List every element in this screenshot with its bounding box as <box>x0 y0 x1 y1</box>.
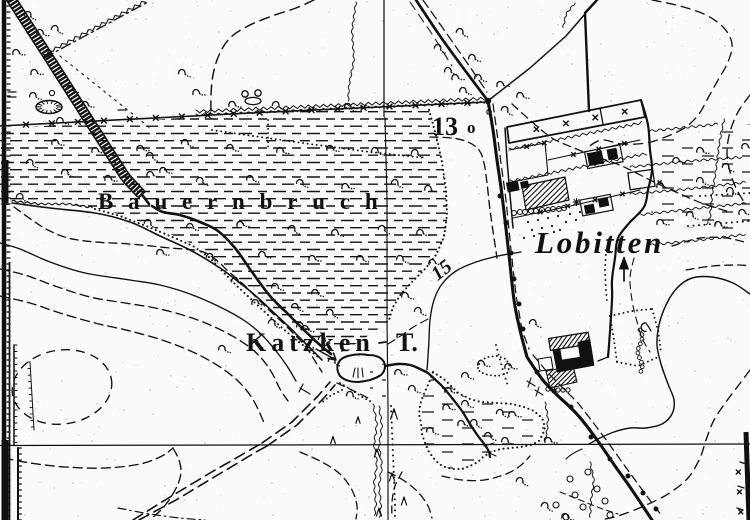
svg-text:Katzken: Katzken <box>246 328 375 357</box>
svg-text:o: o <box>467 118 476 137</box>
svg-text:13: 13 <box>432 112 458 141</box>
svg-text:Bauernbruch: Bauernbruch <box>98 189 392 214</box>
svg-text:T.: T. <box>396 328 418 357</box>
svg-text:Lobitten: Lobitten <box>534 225 664 260</box>
